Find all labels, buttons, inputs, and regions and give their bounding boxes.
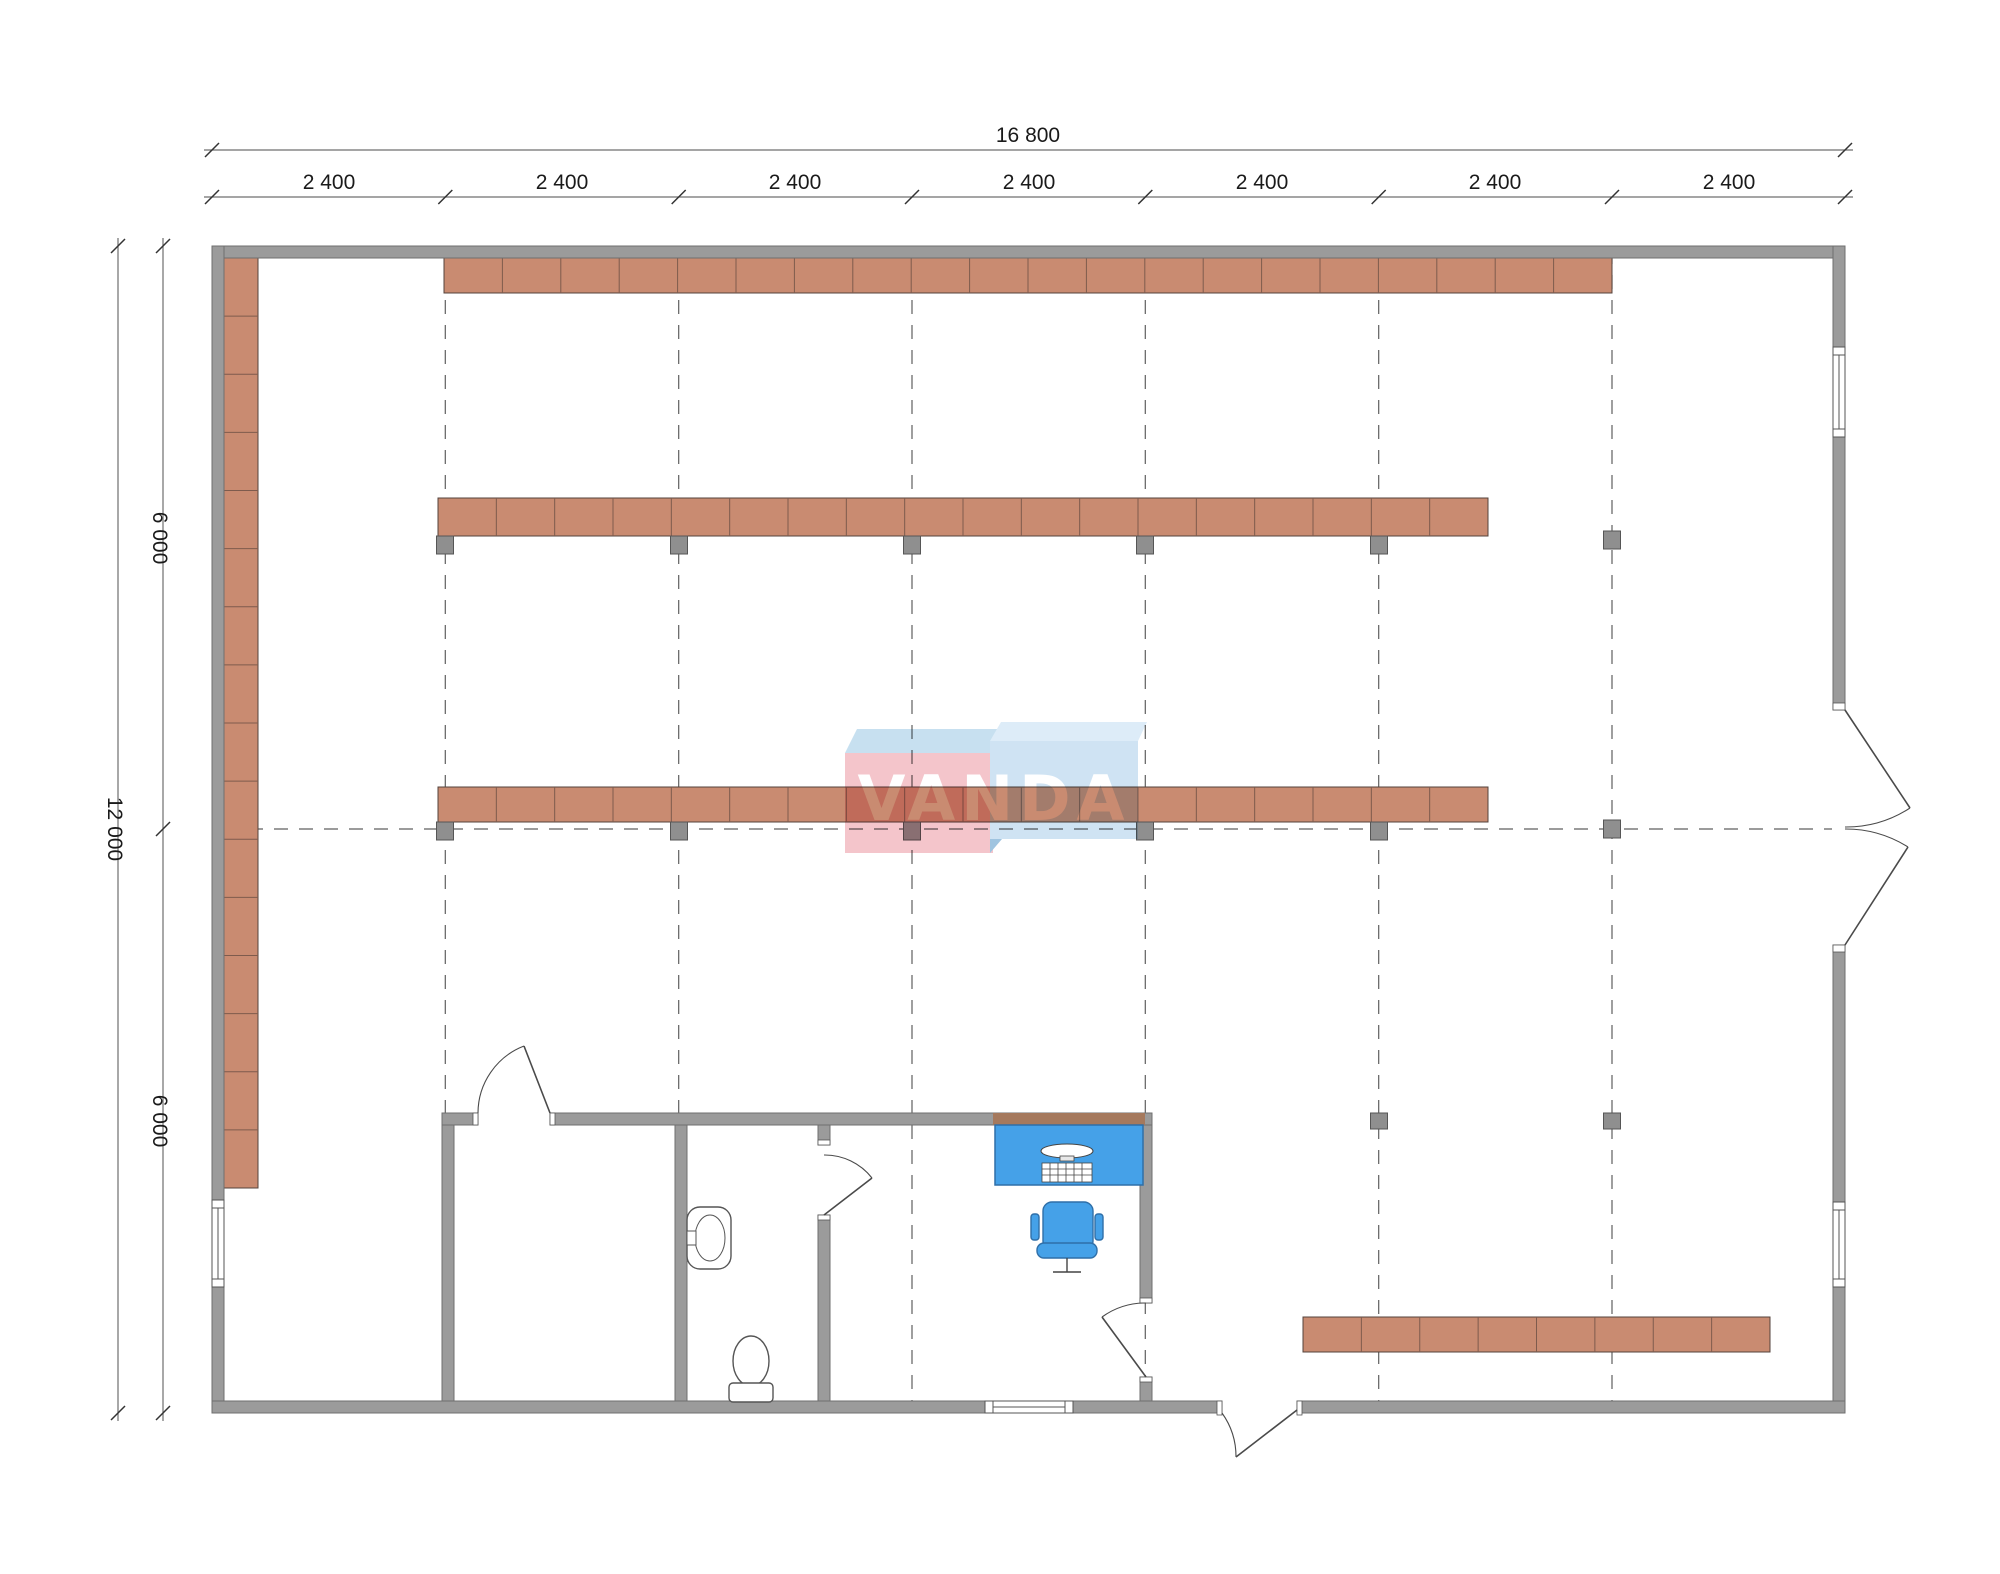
exterior-wall-top [212,246,1845,258]
desk-wall-strip [993,1113,1145,1125]
shelf-row-top [444,258,1612,293]
jamb [1833,945,1845,952]
exterior-wall-bottom-seg2 [1073,1401,1222,1413]
chair-armrest-left [1031,1214,1039,1240]
jamb [1217,1401,1222,1415]
exterior-wall-bottom-seg1 [212,1401,985,1413]
structural-post [904,536,921,554]
room1-bath-wall [675,1125,687,1401]
keyboard [1042,1163,1092,1182]
jamb [550,1113,555,1125]
structural-post [1137,822,1154,840]
chair-armrest-right [1095,1214,1103,1240]
exterior-wall-right-seg2 [1833,437,1845,710]
window-bottom-wall [985,1401,1073,1413]
jamb [818,1215,830,1220]
structural-post [437,536,454,554]
exterior-wall-right-seg3 [1833,945,1845,1202]
structural-post [437,822,454,840]
dim-total-width: 16 800 [996,124,1060,147]
vanda-logo: VANDA [845,722,1147,853]
room1-left-wall [442,1125,454,1401]
exterior-wall-right-seg1 [1833,246,1845,347]
sink [687,1207,731,1269]
jamb [818,1140,830,1145]
jamb [1140,1377,1152,1382]
structural-post [1604,531,1621,549]
shelf-row-bottom-right [1303,1317,1770,1352]
exterior-wall-right-seg4 [1833,1287,1845,1413]
vanda-logo-text: VANDA [857,762,1130,835]
structural-post [1137,536,1154,554]
logo-box-pink-top [845,729,1001,753]
dim-bay-5: 2 400 [1236,171,1289,194]
shelf-row-second [438,498,1488,536]
chair-back [1037,1243,1097,1258]
exterior-wall-left-lower [212,1287,224,1413]
floor-plan-page: VANDA 16 800 2 400 2 400 2 400 2 400 2 4… [0,0,2000,1574]
structural-post [671,536,688,554]
structural-post [1604,1113,1621,1129]
dim-bay-2: 2 400 [536,171,589,194]
dim-bay-7: 2 400 [1703,171,1756,194]
shelf-column-left-wall [224,258,258,1188]
dim-total-height: 12 000 [103,797,126,861]
structural-post [1604,820,1621,838]
logo-box-blue-top [990,722,1147,741]
jamb [1833,703,1845,710]
window-left-wall [212,1200,224,1287]
jamb [1140,1298,1152,1303]
structural-post [1371,1113,1388,1129]
dim-half-height-2: 6 000 [148,1095,171,1148]
dim-bay-3: 2 400 [769,171,822,194]
dim-bay-4: 2 400 [1003,171,1056,194]
structural-post [1371,536,1388,554]
jamb [1297,1401,1302,1415]
bath-office-wall-lower [818,1215,830,1401]
dim-bay-1: 2 400 [303,171,356,194]
exterior-wall-left-upper [212,246,224,1200]
floor-plan-svg: VANDA 16 800 2 400 2 400 2 400 2 400 2 4… [0,0,2000,1574]
structural-post [1371,822,1388,840]
exterior-wall-bottom-seg3 [1297,1401,1845,1413]
jamb [473,1113,478,1125]
window-right-wall-bottom [1833,1202,1845,1287]
structural-post [671,822,688,840]
dim-bay-6: 2 400 [1469,171,1522,194]
dim-half-height-1: 6 000 [148,512,171,565]
window-right-wall-top [1833,347,1845,437]
